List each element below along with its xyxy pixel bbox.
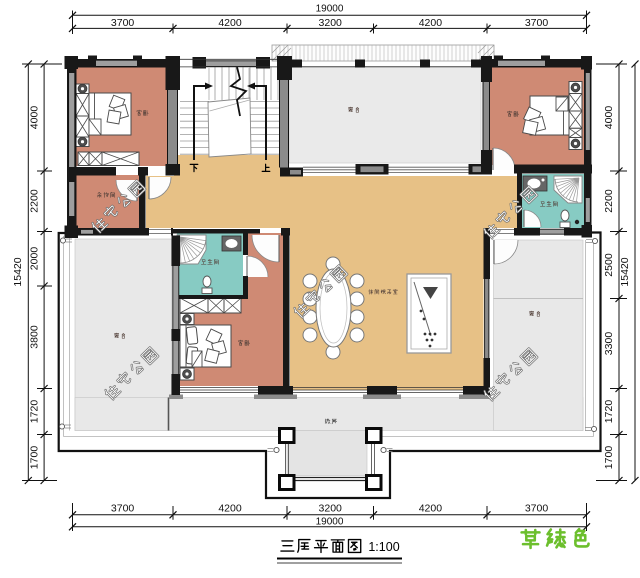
svg-text:3700: 3700 [111,503,135,515]
svg-text:4000: 4000 [29,106,41,130]
svg-text:4200: 4200 [419,503,443,515]
svg-text:4200: 4200 [218,17,242,29]
svg-text:2000: 2000 [29,247,41,271]
svg-text:1700: 1700 [29,446,41,470]
svg-text:4200: 4200 [218,503,242,515]
svg-text:4000: 4000 [603,106,615,130]
svg-text:2200: 2200 [29,189,41,213]
svg-text:1700: 1700 [603,446,615,470]
svg-text:3700: 3700 [111,17,135,29]
svg-text:15420: 15420 [619,257,631,286]
svg-text:3200: 3200 [319,17,343,29]
svg-text:15420: 15420 [12,257,24,286]
svg-text:2500: 2500 [603,253,615,277]
svg-text:1720: 1720 [603,400,615,424]
svg-text:3700: 3700 [525,503,549,515]
svg-text:3800: 3800 [29,325,41,349]
svg-text:1:100: 1:100 [368,540,399,554]
svg-text:19000: 19000 [316,4,344,15]
svg-text:3700: 3700 [525,17,549,29]
svg-text:4200: 4200 [419,17,443,29]
svg-text:19000: 19000 [316,516,344,527]
svg-text:3300: 3300 [603,332,615,356]
svg-text:2200: 2200 [603,189,615,213]
svg-text:1720: 1720 [29,400,41,424]
svg-text:3200: 3200 [319,503,343,515]
